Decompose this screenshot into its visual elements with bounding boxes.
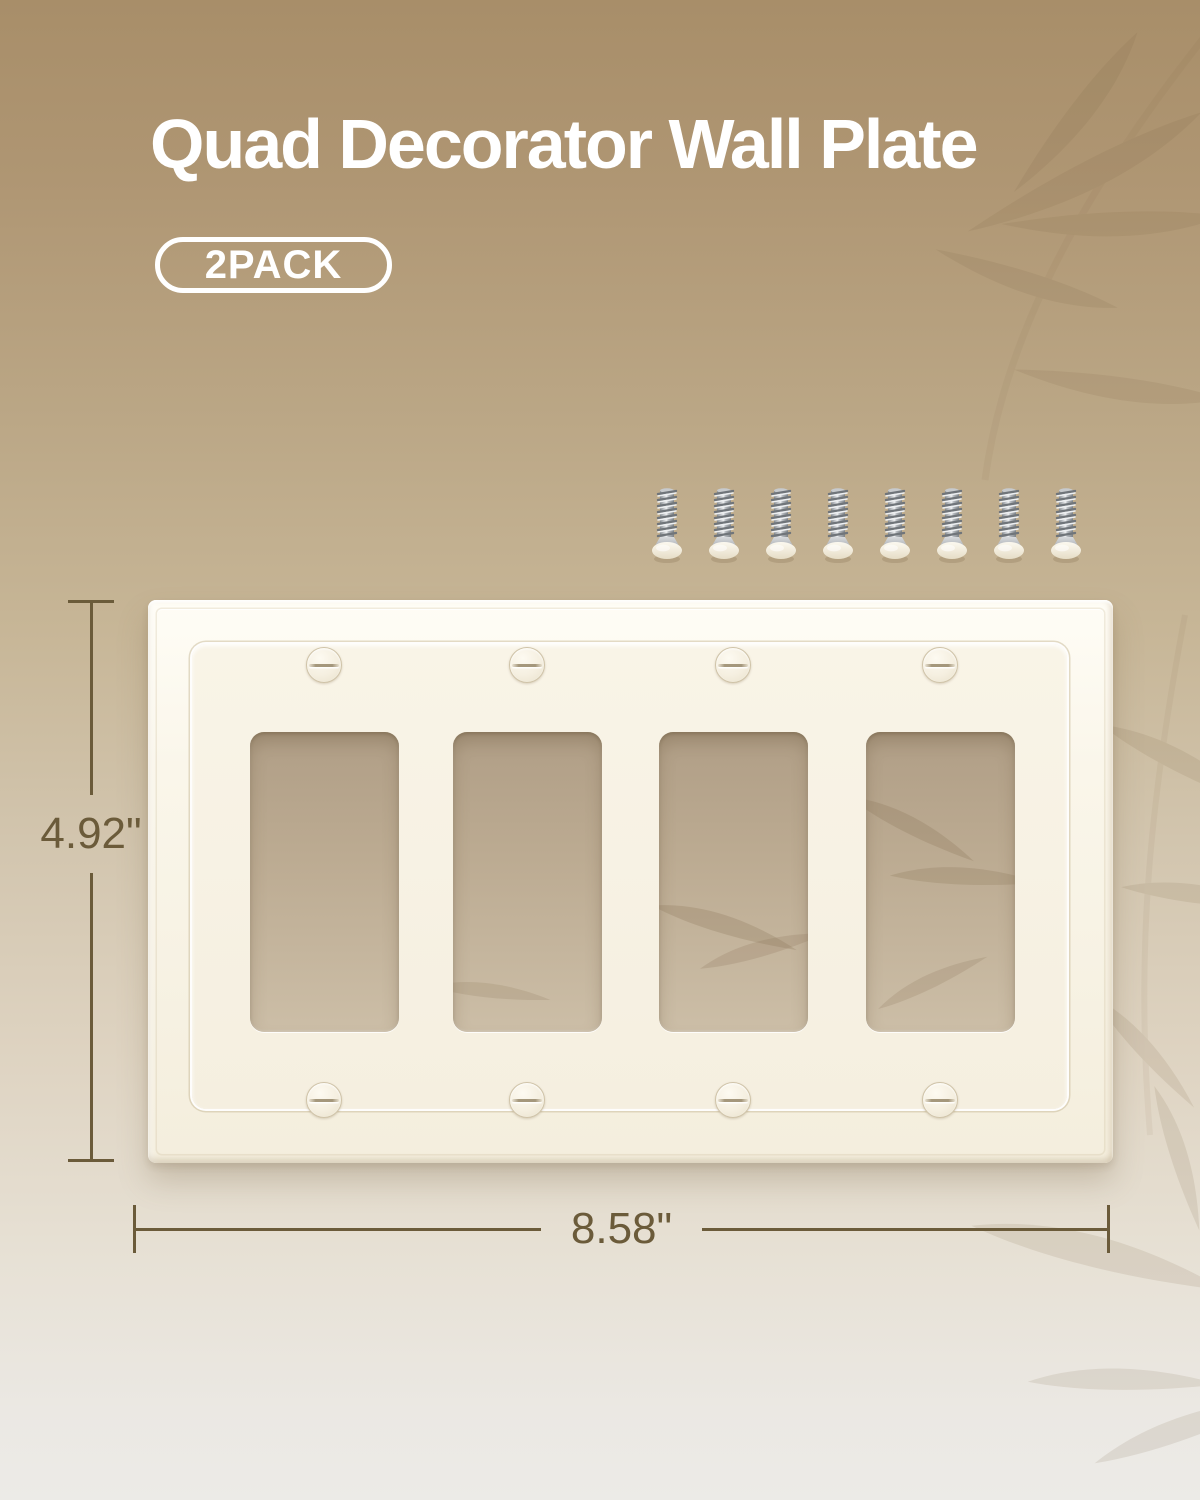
width-dimension-label: 8.58"	[571, 1204, 672, 1254]
screw-icon	[1049, 486, 1083, 566]
plate-screw-head	[922, 1082, 958, 1118]
product-image-canvas: Quad Decorator Wall Plate 2PACK	[0, 0, 1200, 1500]
plate-opening	[866, 732, 1015, 1032]
width-dimension: 8.58"	[133, 1205, 1110, 1253]
plate-screw-head	[306, 1082, 342, 1118]
pack-badge-label: 2PACK	[205, 243, 343, 288]
plate-screw-head	[509, 1082, 545, 1118]
page-title: Quad Decorator Wall Plate	[150, 106, 977, 183]
dimension-line	[136, 1228, 541, 1231]
wall-plate	[148, 600, 1113, 1163]
plate-screw-head	[509, 647, 545, 683]
height-dimension-label: 4.92"	[40, 804, 141, 864]
dimension-cap	[1107, 1205, 1110, 1253]
screw-icon	[650, 486, 684, 566]
screw-icon	[764, 486, 798, 566]
plate-opening	[453, 732, 602, 1032]
plate-screw-head	[306, 647, 342, 683]
dimension-line	[702, 1228, 1107, 1231]
screw-icon	[992, 486, 1026, 566]
plate-opening	[659, 732, 808, 1032]
pack-badge: 2PACK	[155, 237, 392, 293]
dimension-line	[90, 873, 93, 1159]
plate-screw-head	[715, 647, 751, 683]
screw-icon	[878, 486, 912, 566]
plate-opening	[250, 732, 399, 1032]
screw-icon	[707, 486, 741, 566]
dimension-cap	[68, 1159, 114, 1162]
screw-icon	[821, 486, 855, 566]
screw-icon	[935, 486, 969, 566]
plate-screw-head	[922, 647, 958, 683]
plate-screw-head	[715, 1082, 751, 1118]
screws-row	[650, 486, 1083, 566]
height-dimension: 4.92"	[68, 600, 114, 1162]
dimension-line	[90, 603, 93, 795]
